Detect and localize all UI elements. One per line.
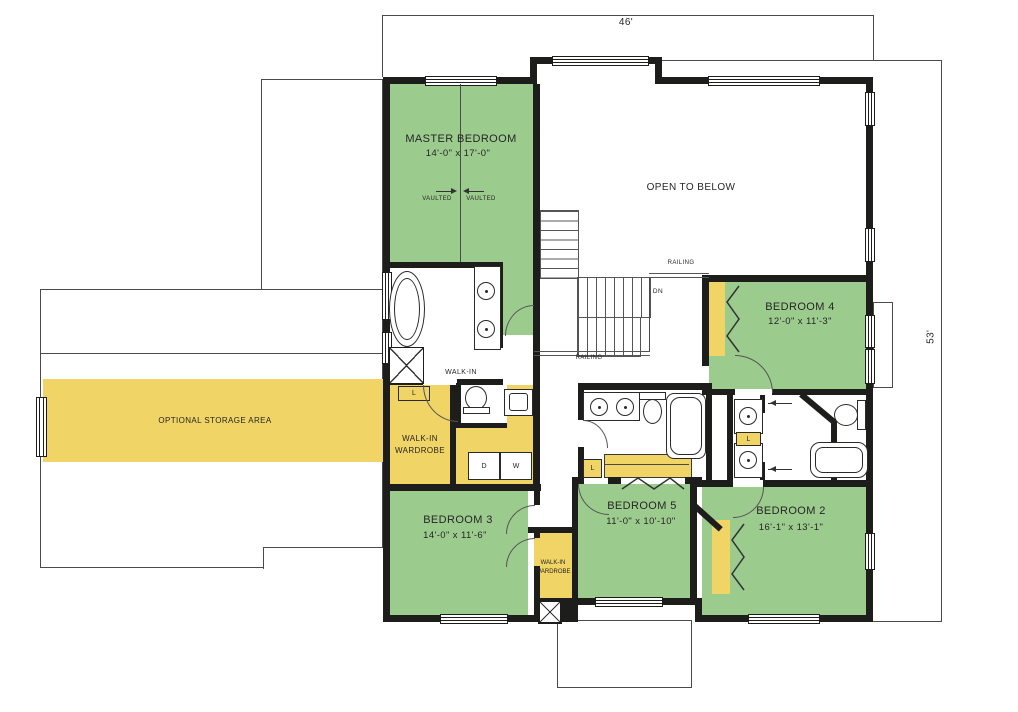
hall-bath-sink-2 xyxy=(616,398,634,416)
right-wall-window-2 xyxy=(865,228,875,262)
hall-bath-toilet-bowl xyxy=(643,399,662,424)
wall-bedroom5-right xyxy=(690,484,697,598)
wall-bedroom3-right-a xyxy=(534,491,540,505)
dimension-ext-top-left xyxy=(382,15,383,77)
master-tub-inner xyxy=(394,278,420,340)
roof-outline-notch xyxy=(263,547,383,569)
wall-bedroom5-top-c xyxy=(685,477,702,484)
wall-bedroom5-top-a xyxy=(572,477,578,484)
bump-window xyxy=(552,56,649,66)
pocket-door-arrow-top xyxy=(768,403,792,404)
dryer: D xyxy=(468,452,500,480)
jackjill-toilet-tank xyxy=(857,400,866,430)
wall-bath-right xyxy=(706,383,712,487)
bedroom3-window xyxy=(440,614,508,624)
bedroom3-wardrobe-label-1: WALK-IN xyxy=(541,560,566,567)
bedroom3-floor xyxy=(389,491,528,615)
floor-plan-canvas: D W L L L MASTER BEDROOM 14'-0" x 17'-0"… xyxy=(0,0,1018,712)
wall-bedroom4-top xyxy=(702,275,873,282)
master-sink-1 xyxy=(477,282,495,300)
bedroom4-closet xyxy=(708,280,725,356)
jackjill-linen: L xyxy=(736,432,761,446)
stairs-upper-flight xyxy=(540,210,579,279)
master-toilet-base xyxy=(463,407,490,414)
hall-bath-door-arc xyxy=(583,420,608,448)
master-wardrobe-label-2: WARDROBE xyxy=(395,446,445,455)
wall-bedroom4-bottom-right xyxy=(772,389,873,395)
wall-bedroom4-closet-left xyxy=(702,275,709,366)
bedroom4-dims: 12'-0" x 11'-3" xyxy=(768,317,832,328)
master-bedroom-floor xyxy=(389,84,533,262)
washer: W xyxy=(500,452,532,480)
vaulted-label-left: VAULTED xyxy=(422,196,452,203)
bedroom2-closet xyxy=(712,520,730,594)
wall-jackjill-left xyxy=(727,389,733,487)
dimension-height-label: 53' xyxy=(925,330,937,344)
bedroom2-bifold-doors xyxy=(731,523,746,591)
laundry-sink-basin xyxy=(509,393,528,411)
jackjill-sink-2 xyxy=(739,451,757,469)
vaulted-ridge-line xyxy=(460,84,461,262)
dimension-ext-top-right xyxy=(873,15,874,60)
chimney-right xyxy=(873,302,893,388)
porch-outline-bottom xyxy=(557,620,692,688)
bedroom3-wardrobe-label-2: WARDROBE xyxy=(535,569,570,576)
storage-window xyxy=(36,397,47,457)
wall-jackjill-diagonal xyxy=(799,392,837,425)
wall-center-upper xyxy=(533,84,540,380)
bedroom3-name: BEDROOM 3 xyxy=(423,514,493,527)
master-wardrobe-label-1: WALK-IN xyxy=(402,434,438,443)
bedroom2-right-window xyxy=(865,533,875,570)
wall-bedroom2-top-right xyxy=(763,480,873,487)
bedroom4-name: BEDROOM 4 xyxy=(765,301,835,314)
chimney-box xyxy=(538,600,562,624)
dimension-width-label: 46' xyxy=(616,17,636,29)
railing-label-upper: RAILING xyxy=(668,260,695,267)
bedroom5-bifold-doors xyxy=(621,477,685,490)
hall-bath-linen: L xyxy=(583,459,602,478)
vaulted-arrow-right xyxy=(466,191,484,192)
bedroom3-dims: 14'-0" x 11'-6" xyxy=(423,531,487,542)
bedroom5-window xyxy=(595,597,663,607)
bedroom4-bifold-doors xyxy=(726,285,741,353)
linen-label: L xyxy=(591,465,595,472)
right-wall-window-1 xyxy=(865,92,875,126)
open-to-below-label: OPEN TO BELOW xyxy=(647,182,736,194)
top-right-window xyxy=(708,76,820,86)
wall-bedroom5-top-b xyxy=(608,477,621,484)
railing-label-lower: RAILING xyxy=(576,355,603,362)
railing-upper xyxy=(649,273,709,278)
linen-label: L xyxy=(747,436,751,443)
vaulted-arrow-left xyxy=(436,191,454,192)
wall-center-lower xyxy=(533,380,540,484)
dryer-label: D xyxy=(481,463,486,470)
wall-wardrobe3-top xyxy=(528,527,578,533)
bedroom2-bottom-window xyxy=(748,614,820,624)
hall-bath-closet-shelf xyxy=(605,464,689,465)
walk-in-label: WALK-IN xyxy=(445,369,477,377)
bedroom4-window-1 xyxy=(865,315,875,348)
jackjill-sink-1 xyxy=(739,407,757,425)
master-sink-2 xyxy=(477,320,495,338)
wall-bedroom5-left xyxy=(572,484,578,598)
optional-storage-label: OPTIONAL STORAGE AREA xyxy=(158,416,271,425)
bedroom2-dims: 16'-1" x 13'-1" xyxy=(759,523,823,534)
stairs-down-label: DN xyxy=(653,288,663,295)
vaulted-label-right: VAULTED xyxy=(466,196,496,203)
bedroom4-window-2 xyxy=(865,349,875,384)
dimension-ext-right-top xyxy=(662,60,942,61)
washer-label: W xyxy=(513,463,520,470)
dimension-ext-right-bottom xyxy=(873,621,942,622)
bedroom5-dims: 11'-0" x 10'-10" xyxy=(606,517,675,528)
master-bedroom-name: MASTER BEDROOM xyxy=(405,133,516,146)
dimension-line-top xyxy=(382,15,874,16)
master-shower xyxy=(389,347,424,384)
bedroom5-name: BEDROOM 5 xyxy=(607,500,677,513)
pocket-door-arrow-bottom xyxy=(768,469,792,470)
bedroom2-name: BEDROOM 2 xyxy=(756,505,826,518)
master-top-window xyxy=(425,76,497,86)
stairs-middle-flight xyxy=(577,277,651,318)
roof-outline-top-left xyxy=(261,79,383,291)
hall-bath-tub-inner xyxy=(670,397,702,455)
jackjill-tub-inner xyxy=(815,447,863,473)
hall-bath-sink-1 xyxy=(590,398,608,416)
jackjill-toilet-bowl xyxy=(834,404,858,426)
stairs-right-edge xyxy=(649,277,650,352)
wall-bath-top xyxy=(578,383,710,390)
wall-wardrobe-row-right xyxy=(457,379,503,385)
roof-line-left-wing xyxy=(40,353,383,354)
wall-bedroom3-top xyxy=(383,484,541,491)
dimension-line-right xyxy=(941,60,942,622)
master-bedroom-dims: 14'-0" x 17'-0" xyxy=(426,149,490,160)
linen-label: L xyxy=(412,390,416,397)
